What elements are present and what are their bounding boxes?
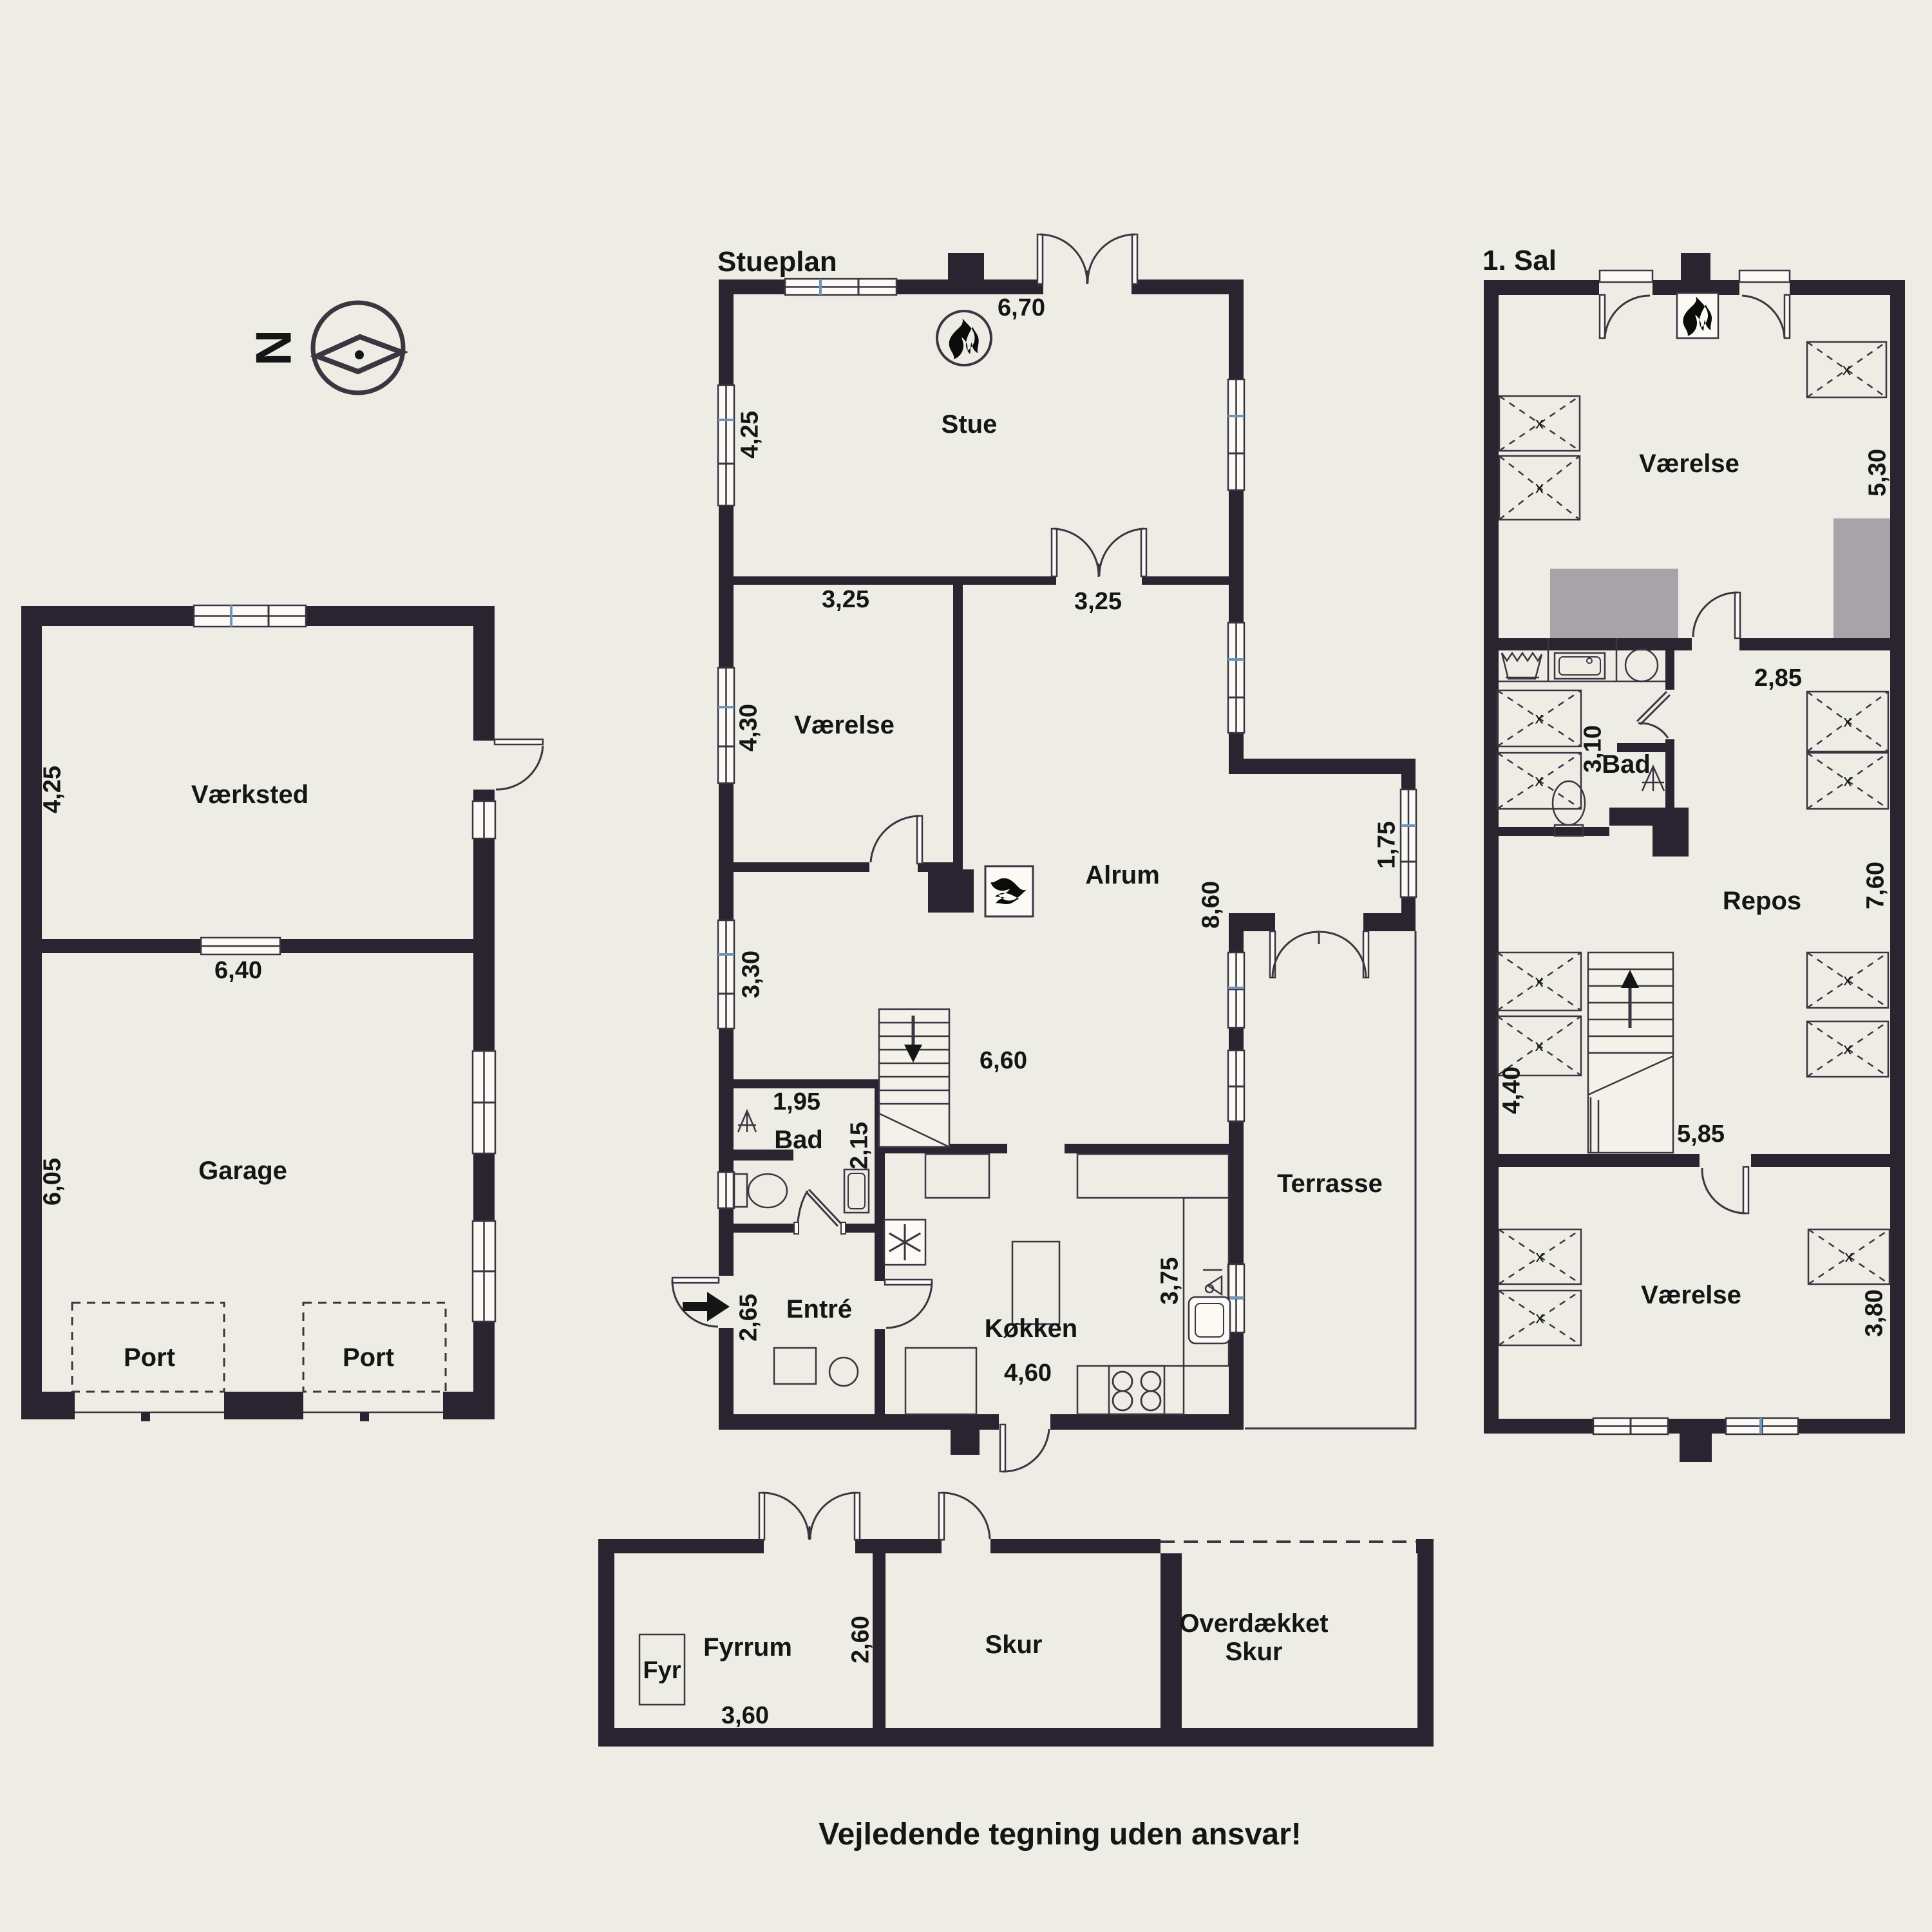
svg-text:Stue: Stue xyxy=(942,410,998,439)
svg-text:6,05: 6,05 xyxy=(39,1158,66,1206)
svg-text:Værelse: Værelse xyxy=(1639,450,1739,478)
svg-text:Garage: Garage xyxy=(198,1157,287,1185)
svg-text:x: x xyxy=(1536,1247,1544,1266)
svg-text:Værksted: Værksted xyxy=(191,781,308,809)
svg-text:4,25: 4,25 xyxy=(736,411,763,459)
svg-text:Køkken: Køkken xyxy=(985,1314,1078,1343)
svg-text:Entré: Entré xyxy=(786,1295,852,1323)
svg-text:x: x xyxy=(1844,970,1852,989)
svg-text:6,70: 6,70 xyxy=(998,294,1045,321)
svg-text:7,60: 7,60 xyxy=(1862,862,1889,909)
svg-text:Terrasse: Terrasse xyxy=(1277,1170,1383,1198)
svg-text:Værelse: Værelse xyxy=(794,711,895,739)
svg-text:Port: Port xyxy=(343,1343,394,1372)
svg-text:3,80: 3,80 xyxy=(1861,1289,1888,1337)
svg-text:x: x xyxy=(1845,1247,1853,1266)
svg-text:Værelse: Værelse xyxy=(1641,1281,1741,1309)
svg-text:Repos: Repos xyxy=(1723,887,1801,915)
svg-text:2,15: 2,15 xyxy=(846,1122,873,1170)
svg-text:4,40: 4,40 xyxy=(1498,1066,1525,1114)
svg-text:8,60: 8,60 xyxy=(1197,881,1224,929)
svg-text:Vejledende tegning uden ansvar: Vejledende tegning uden ansvar! xyxy=(819,1817,1302,1851)
svg-text:5,30: 5,30 xyxy=(1864,449,1891,497)
svg-text:x: x xyxy=(1535,708,1544,728)
svg-text:x: x xyxy=(1842,359,1851,379)
svg-text:Fyr: Fyr xyxy=(643,1657,681,1684)
svg-text:6,40: 6,40 xyxy=(214,957,262,984)
svg-text:2,85: 2,85 xyxy=(1754,665,1802,692)
svg-text:x: x xyxy=(1535,478,1544,497)
svg-text:x: x xyxy=(1844,1039,1852,1058)
svg-text:Stueplan: Stueplan xyxy=(717,246,837,278)
svg-text:x: x xyxy=(1535,771,1544,790)
svg-text:x: x xyxy=(1844,771,1852,790)
svg-text:Bad: Bad xyxy=(774,1126,823,1154)
svg-text:Skur: Skur xyxy=(985,1631,1043,1659)
svg-text:4,30: 4,30 xyxy=(735,704,762,752)
svg-text:Port: Port xyxy=(124,1343,175,1372)
svg-text:3,30: 3,30 xyxy=(737,951,764,998)
svg-text:N: N xyxy=(245,330,301,366)
svg-text:Bad: Bad xyxy=(1602,750,1651,779)
svg-text:4,60: 4,60 xyxy=(1004,1359,1052,1387)
svg-text:3,75: 3,75 xyxy=(1156,1257,1183,1305)
svg-text:Alrum: Alrum xyxy=(1085,861,1160,889)
svg-text:1. Sal: 1. Sal xyxy=(1482,245,1557,276)
svg-text:3,25: 3,25 xyxy=(1074,588,1122,615)
svg-text:3,25: 3,25 xyxy=(822,586,869,613)
svg-text:5,85: 5,85 xyxy=(1677,1121,1725,1148)
svg-text:Overdækket: Overdækket xyxy=(1179,1609,1328,1638)
svg-text:x: x xyxy=(1535,413,1544,433)
svg-text:x: x xyxy=(1535,971,1544,990)
svg-text:x: x xyxy=(1844,712,1852,731)
svg-text:2,60: 2,60 xyxy=(847,1616,874,1663)
svg-text:x: x xyxy=(1536,1308,1544,1327)
svg-text:2,65: 2,65 xyxy=(735,1294,762,1341)
svg-text:1,75: 1,75 xyxy=(1373,821,1400,869)
svg-text:3,60: 3,60 xyxy=(721,1702,769,1729)
svg-text:Fyrrum: Fyrrum xyxy=(703,1633,792,1662)
svg-text:6,60: 6,60 xyxy=(980,1047,1027,1074)
svg-text:4,25: 4,25 xyxy=(39,766,66,813)
svg-text:1,95: 1,95 xyxy=(773,1088,820,1115)
svg-text:Skur: Skur xyxy=(1226,1638,1283,1666)
svg-text:x: x xyxy=(1535,1036,1544,1055)
